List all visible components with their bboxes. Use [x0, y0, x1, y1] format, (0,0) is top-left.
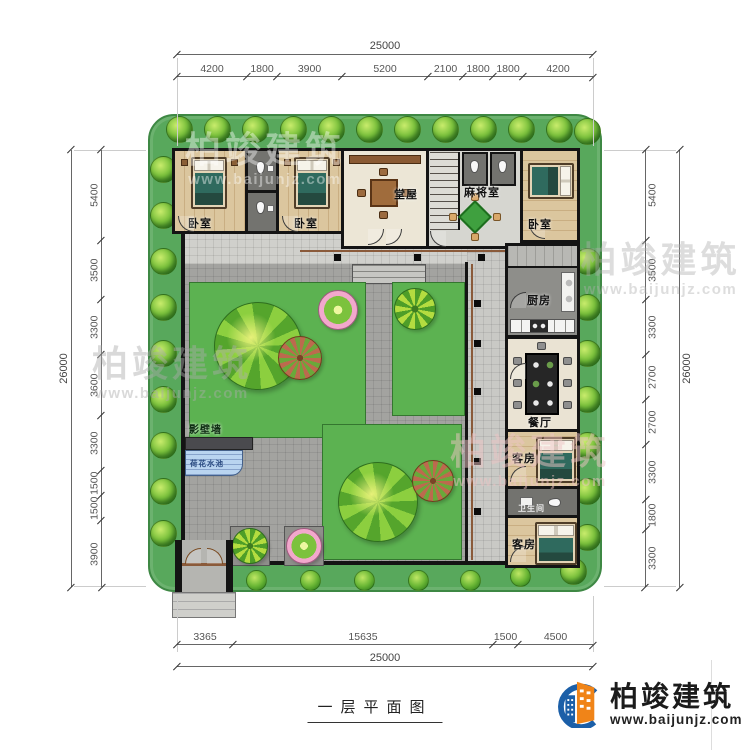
fridge-icon [561, 272, 575, 312]
room-label-dining: 餐厅 [528, 414, 552, 430]
nightstand-icon [333, 159, 340, 166]
room-label-guest-2: 客房 [512, 536, 536, 552]
corridor-wall [465, 262, 468, 562]
column-icon [414, 254, 421, 261]
company-logo: 柏竣建筑 www.baijunjz.com [550, 676, 743, 733]
chair-icon [379, 168, 388, 176]
tree-icon [508, 116, 535, 143]
dim-left-segments: 5400 3500 3300 3600 3300 1500 1500 3900 [88, 150, 102, 587]
tree-icon [150, 478, 177, 505]
dim-bottom-segments: 3365 15635 1500 4500 [177, 631, 593, 645]
tree-icon [318, 116, 345, 143]
pink-flower-icon [318, 290, 358, 330]
tree-icon [280, 116, 307, 143]
room-label-hall: 堂屋 [394, 186, 418, 202]
extension-line [74, 150, 146, 151]
tree-icon [546, 116, 573, 143]
door-arc [386, 229, 402, 245]
room-label-kitchen: 厨房 [527, 292, 551, 308]
floor-plan-caption: 一层平面图 [307, 696, 442, 723]
sink-icon [267, 165, 274, 172]
lotus-pond-label: 荷花水池 [190, 458, 224, 469]
logo-website: www.baijunjz.com [610, 712, 743, 727]
back-terrace [508, 246, 577, 268]
room-kitchen [505, 243, 580, 338]
column-icon [334, 254, 341, 261]
column-icon [474, 340, 481, 347]
screen-wall-label: 影壁墙 [189, 421, 222, 436]
room-label-mahjong: 麻将室 [464, 184, 500, 200]
bed-icon [535, 522, 577, 565]
shrub-icon [408, 570, 429, 591]
tree-icon [204, 116, 231, 143]
door-arc [510, 466, 526, 482]
chair-icon [357, 189, 366, 197]
column-icon [474, 508, 481, 515]
column-icon [478, 254, 485, 261]
pink-flower-icon [286, 528, 322, 564]
chair-icon [379, 211, 388, 219]
dim-left-total: 26000 [57, 150, 72, 587]
stool-icon [471, 233, 479, 241]
stool-icon [449, 213, 457, 221]
tree-icon [356, 116, 383, 143]
tree-icon [150, 520, 177, 547]
nightstand-icon [231, 159, 238, 166]
extension-line [593, 58, 594, 146]
tree-icon [574, 118, 601, 145]
bed-icon [294, 157, 330, 209]
sink-icon [267, 205, 274, 212]
floor-plan-sheet: 影壁墙 荷花水池 卧室 卧室 堂屋 [0, 0, 750, 750]
fan-plant-icon [278, 336, 322, 380]
stove-icon [530, 320, 548, 332]
shrub-icon [300, 570, 321, 591]
room-label-guest-1: 客房 [512, 450, 536, 466]
room-label-bedroom-3: 卧室 [528, 216, 552, 232]
shrub-icon [460, 570, 481, 591]
door-arc [510, 292, 526, 308]
extension-line [74, 586, 146, 587]
tree-icon [150, 248, 177, 275]
door-arc [510, 363, 526, 379]
cabinet-icon [349, 155, 421, 164]
dim-top-total: 25000 [177, 40, 593, 55]
door-arc [368, 229, 384, 245]
nightstand-icon [284, 159, 291, 166]
bathroom-divider-wall [248, 190, 276, 193]
entry-steps [352, 264, 426, 284]
stool-icon [493, 213, 501, 221]
chair-icon [537, 342, 546, 350]
extension-line [604, 586, 676, 587]
dim-top-segments: 4200 1800 3900 5200 2100 1800 1800 4200 [177, 63, 593, 77]
tree-icon [242, 116, 269, 143]
column-icon [474, 458, 481, 465]
tree-icon [150, 340, 177, 367]
mahjong-table-icon [458, 200, 492, 234]
tree-icon [150, 294, 177, 321]
shrub-icon [510, 566, 531, 587]
tree-icon [150, 432, 177, 459]
chair-icon [513, 401, 522, 409]
gate-steps [172, 592, 236, 618]
tree-icon [166, 116, 193, 143]
tree-icon [150, 386, 177, 413]
dining-table-icon [525, 353, 559, 415]
toilet-icon [256, 161, 265, 174]
dim-right-total: 26000 [679, 150, 694, 587]
gate-post [175, 540, 182, 592]
bed-icon [536, 437, 576, 483]
shrub-icon [354, 570, 375, 591]
logo-building-icon [550, 676, 602, 733]
dim-bottom-total: 25000 [177, 652, 593, 667]
bed-icon [191, 157, 227, 209]
logo-company-name: 柏竣建筑 [610, 682, 743, 713]
bathroom-block-1 [245, 148, 279, 234]
tree-icon [432, 116, 459, 143]
dim-right-segments: 5400 3500 3300 2700 2700 3300 1800 3300 [645, 150, 659, 587]
chair-icon [513, 379, 522, 387]
porch-rail [300, 250, 505, 252]
chair-icon [563, 379, 572, 387]
tree-icon [470, 116, 497, 143]
entrance-gate [175, 540, 233, 592]
big-tree-icon [338, 462, 418, 542]
tree-icon [394, 116, 421, 143]
chair-icon [563, 357, 572, 365]
gate-post [226, 540, 233, 592]
column-icon [474, 388, 481, 395]
extension-line [604, 150, 676, 151]
toilet-icon [548, 498, 561, 507]
shrub-icon [246, 570, 267, 591]
chair-icon [563, 401, 572, 409]
fan-plant-icon [412, 460, 454, 502]
corridor-rail [471, 264, 473, 560]
palm-tree-icon [394, 288, 436, 330]
column-icon [474, 300, 481, 307]
courtyard-wall-left [181, 230, 185, 565]
palm-tree-icon [232, 528, 268, 564]
room-label-bathroom: 卫生间 [518, 503, 545, 514]
nightstand-icon [181, 159, 188, 166]
screen-wall [185, 437, 253, 450]
bed-icon [528, 163, 574, 199]
toilet-icon [256, 201, 265, 214]
